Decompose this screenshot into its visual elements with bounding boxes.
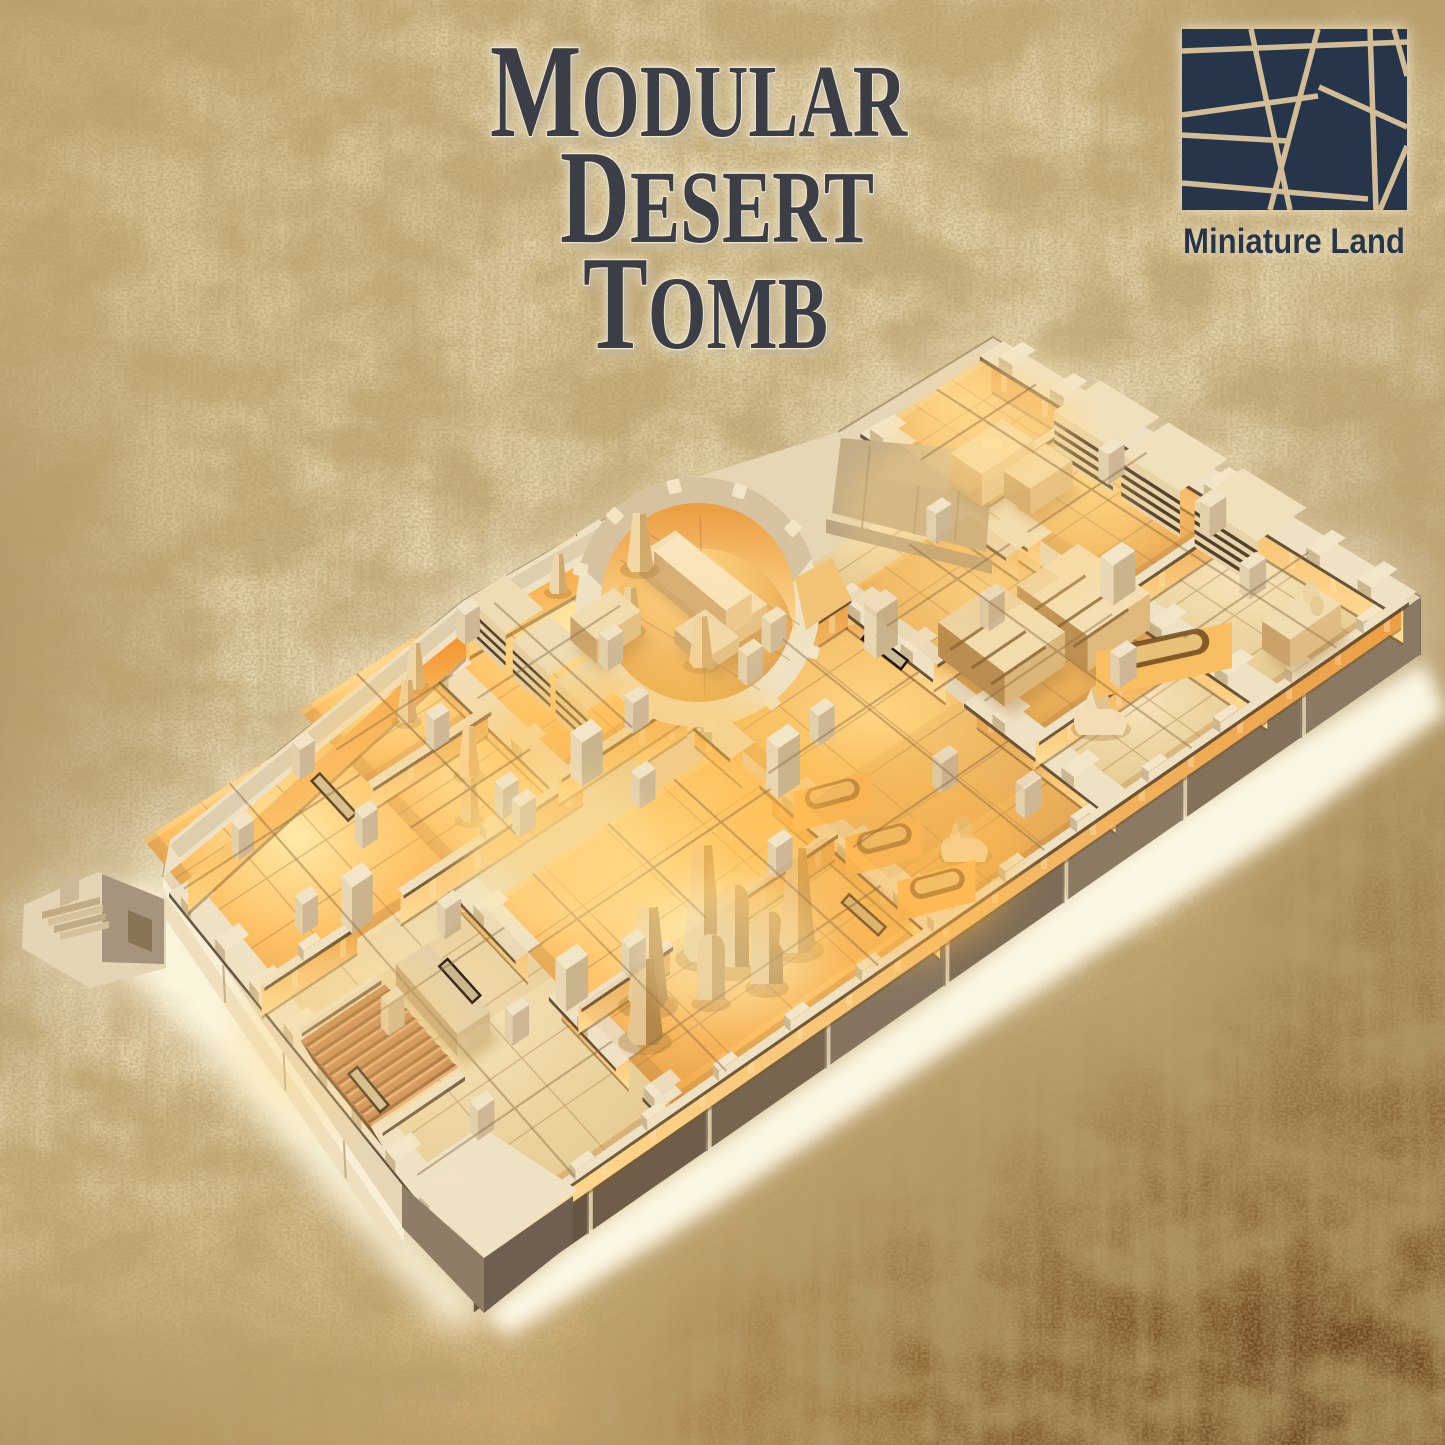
svg-text:Miniature Land: Miniature Land — [1183, 222, 1405, 261]
svg-text:MODULAR: MODULAR — [490, 17, 908, 165]
